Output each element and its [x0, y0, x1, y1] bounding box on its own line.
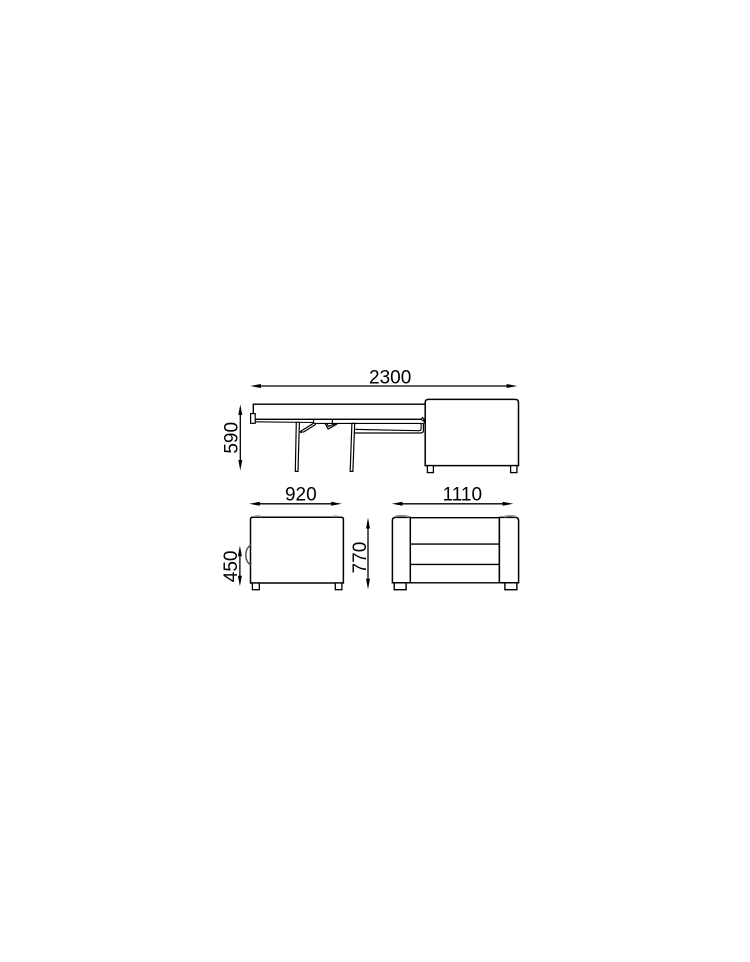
svg-text:450: 450: [221, 551, 242, 583]
svg-text:1110: 1110: [443, 485, 482, 506]
svg-text:770: 770: [350, 542, 371, 574]
svg-text:2300: 2300: [369, 367, 411, 388]
svg-text:920: 920: [285, 485, 317, 506]
svg-text:590: 590: [221, 422, 242, 454]
